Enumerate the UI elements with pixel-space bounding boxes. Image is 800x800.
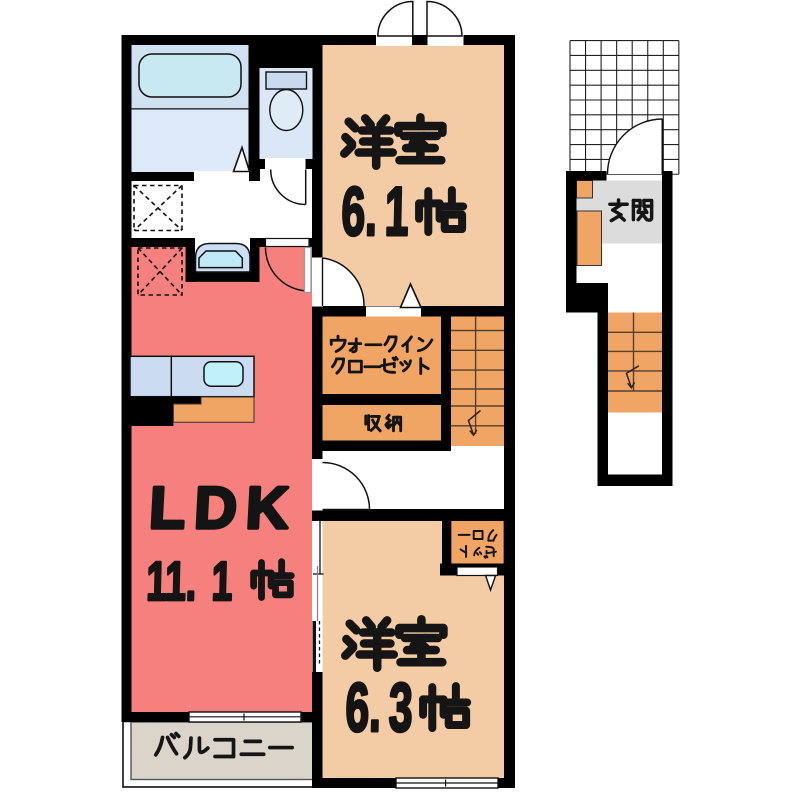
svg-text:LDK: LDK (148, 475, 300, 541)
svg-text:11.: 11. (146, 550, 197, 612)
svg-text:6.: 6. (341, 174, 378, 251)
svg-text:6.: 6. (345, 670, 382, 747)
svg-text:1: 1 (384, 174, 409, 251)
svg-text:1: 1 (211, 550, 233, 612)
svg-text:3: 3 (388, 670, 413, 747)
